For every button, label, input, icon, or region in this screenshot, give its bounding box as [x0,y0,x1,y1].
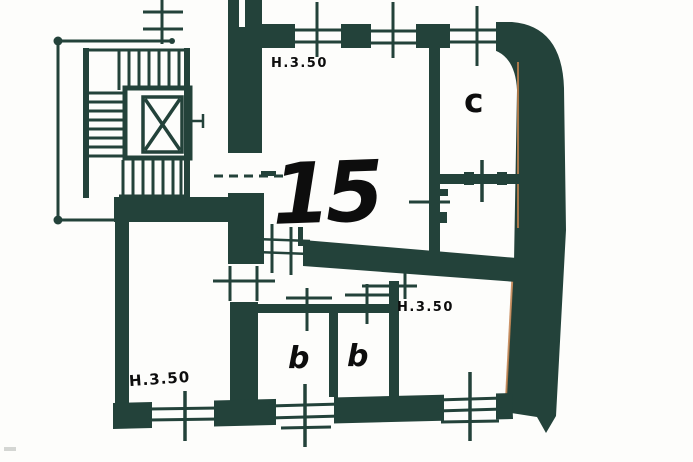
door-icon [213,266,275,301]
floor-plan-canvas: 15 c b b H.3.50 H.3.50 H.3.50 [0,0,693,462]
stair-treads-bottom [123,160,181,196]
b-partition-wall [329,310,338,402]
boundary-dot [54,216,63,225]
room-label-b1: b [288,344,309,374]
central-wall-lower [230,302,258,408]
stair-treads-top [119,50,179,90]
room-label-b2: b [347,342,368,372]
unit-number-label: 15 [271,149,381,237]
room-c-left-wall [429,46,440,258]
height-annotation-top: H.3.50 [271,57,328,70]
b-right-partition-wall [389,281,399,401]
sloped-wall [303,240,517,282]
height-annotation-bottom-right: H.3.50 [397,301,454,314]
window-icon [143,0,183,44]
stair-treads-left [89,93,125,156]
window-icon [285,2,351,57]
window-icon [361,2,427,58]
right-exterior-wall [483,22,566,433]
staircase [54,37,205,225]
room-label-c: c [464,84,484,117]
window-icon [286,288,332,331]
scan-smudge [4,447,16,451]
boundary-dot [54,37,63,46]
stair-bottom-wall [114,197,263,222]
left-wall [115,197,129,426]
boundary-dot [169,38,175,44]
height-annotation-bottom-left: H.3.50 [129,370,191,389]
elevator-icon [125,88,204,158]
